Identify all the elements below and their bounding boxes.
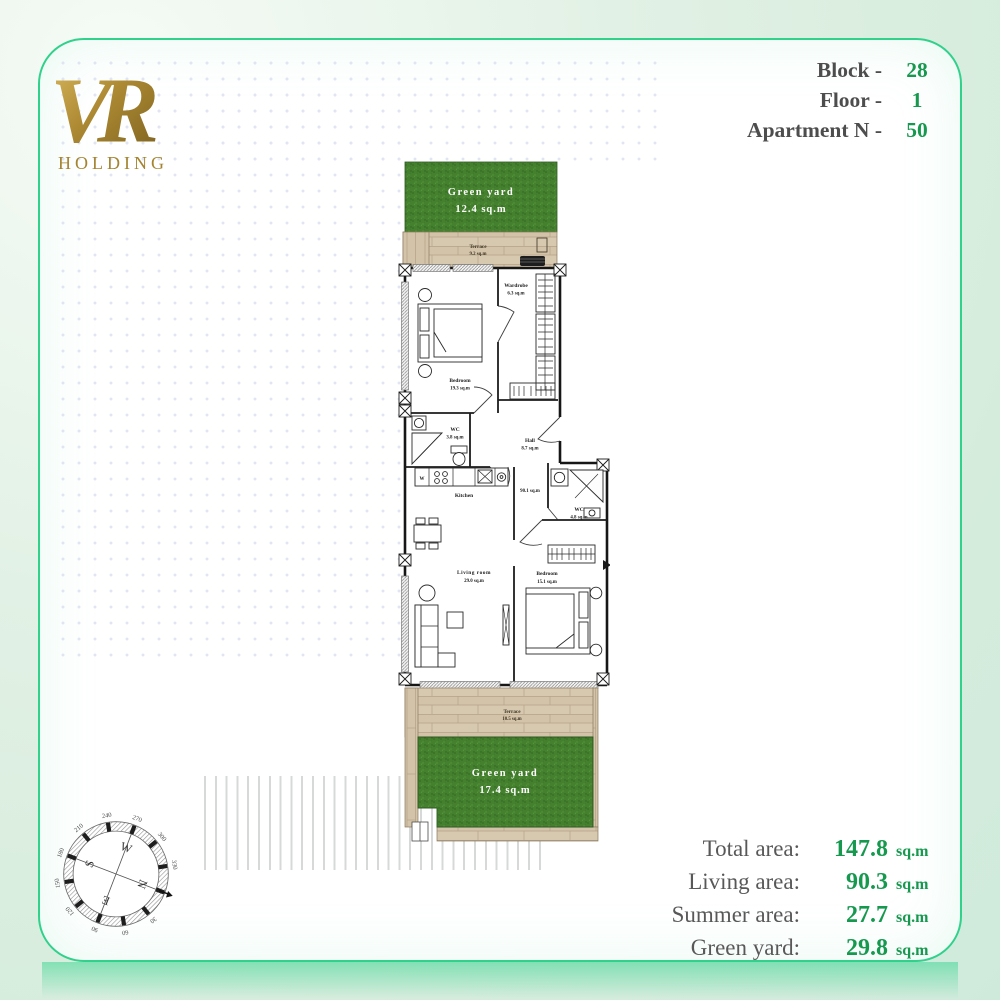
inner-area-label: 90.1 sq.m xyxy=(520,489,540,494)
summer-area-unit: sq.m xyxy=(896,909,946,929)
compass-rose-icon: N E S W 30 60 90 120 150 180 210 240 270… xyxy=(48,806,184,942)
living-area-value: 90.3 xyxy=(808,869,888,896)
green-yard-top-name: Green yard xyxy=(448,187,514,198)
vr-holding-logo: VR HOLDING xyxy=(56,60,216,174)
washer-label: W xyxy=(420,477,425,482)
svg-text:30: 30 xyxy=(148,915,157,925)
terrace-top-area: Terrace 9.2 sq.m xyxy=(403,232,557,268)
bedroom2-area: 15.1 sq.m xyxy=(537,580,557,585)
svg-text:300: 300 xyxy=(156,831,168,843)
summer-area-label: Summer area: xyxy=(672,902,800,928)
svg-text:270: 270 xyxy=(131,814,143,824)
total-area-label: Total area: xyxy=(672,836,800,862)
terrace-bottom-area-value: 10.5 sq.m xyxy=(502,717,521,722)
terrace-top-area-value: 9.2 sq.m xyxy=(470,252,487,257)
svg-text:330: 330 xyxy=(170,859,178,870)
tv-unit-icon xyxy=(503,605,509,645)
coffee-table-icon xyxy=(447,612,463,628)
apartment-number-value: 50 xyxy=(888,118,946,143)
area-summary: Total area: 147.8 sq.m Living area: 90.3… xyxy=(672,836,946,962)
wardrobe-name: Wardrobe xyxy=(504,283,528,289)
wardrobe-area: 6.3 sq.m xyxy=(507,292,524,297)
logo-monogram-text: VR xyxy=(56,60,156,146)
floor-plan: Green yard 12.4 sq.m Terrace 9.2 sq.m xyxy=(398,156,610,848)
terrace-top-name: Terrace xyxy=(469,244,487,250)
green-yard-top-area-value: 12.4 sq.m xyxy=(455,204,506,215)
block-label: Block - xyxy=(747,58,882,83)
green-yard-value: 29.8 xyxy=(808,935,888,962)
bedroom1-area: 19.3 sq.m xyxy=(450,387,470,392)
hall-area: 8.7 sq.m xyxy=(521,447,538,452)
green-yard-top-area: Green yard 12.4 sq.m xyxy=(405,162,557,232)
svg-text:60: 60 xyxy=(121,928,128,936)
living-area-label: Living area: xyxy=(672,869,800,895)
total-area-value: 147.8 xyxy=(808,836,888,863)
green-yard-label: Green yard: xyxy=(672,935,800,961)
living-area-unit: sq.m xyxy=(896,876,946,896)
svg-text:180: 180 xyxy=(56,847,66,859)
green-yard-bottom-area-value: 17.4 sq.m xyxy=(479,785,530,796)
bottom-glow-decoration xyxy=(42,962,958,1000)
floor-label: Floor - xyxy=(747,88,882,113)
living-room-area: 29.0 sq.m xyxy=(464,579,484,584)
logo-company-name: HOLDING xyxy=(58,153,216,174)
apartment-number-label: Apartment N - xyxy=(747,118,882,143)
green-yard-bottom-name: Green yard xyxy=(472,768,538,779)
wc1-name: WC xyxy=(450,427,459,433)
bed2-icon xyxy=(526,587,602,656)
svg-text:120: 120 xyxy=(65,905,77,917)
terrace-bottom-name: Terrace xyxy=(503,709,521,715)
wc2-area: 4.8 sq.m xyxy=(570,516,587,521)
kitchen-counter-icon xyxy=(415,468,508,486)
living-room-name: Living room xyxy=(457,570,491,576)
svg-text:240: 240 xyxy=(101,812,112,820)
hall-name: Hall xyxy=(525,438,535,444)
svg-text:90: 90 xyxy=(91,924,100,933)
bedroom1-name: Bedroom xyxy=(449,378,471,384)
vr-monogram-icon: VR xyxy=(56,60,206,146)
wc1-area: 3.8 sq.m xyxy=(446,436,463,441)
green-yard-unit: sq.m xyxy=(896,942,946,962)
wc2-name: WC xyxy=(574,507,583,513)
green-yard-bottom-area: Green yard 17.4 sq.m xyxy=(412,737,593,841)
block-value: 28 xyxy=(888,58,946,83)
bedroom2-name: Bedroom xyxy=(536,571,558,577)
floor-value: 1 xyxy=(888,88,946,113)
summer-area-value: 27.7 xyxy=(808,902,888,929)
kitchen-name: Kitchen xyxy=(455,493,473,499)
svg-text:210: 210 xyxy=(73,823,85,835)
svg-text:150: 150 xyxy=(54,878,62,889)
total-area-unit: sq.m xyxy=(896,843,946,863)
apartment-info-header: Block - 28 Floor - 1 Apartment N - 50 xyxy=(747,58,946,143)
